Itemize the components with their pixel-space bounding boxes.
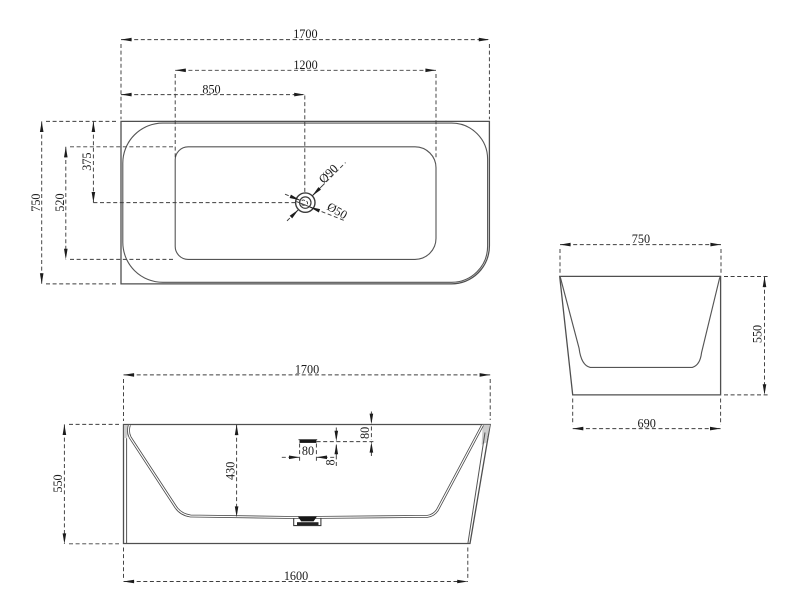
svg-text:850: 850 bbox=[202, 82, 220, 96]
svg-text:Ø50: Ø50 bbox=[325, 199, 350, 222]
svg-text:80: 80 bbox=[302, 444, 314, 458]
svg-text:1700: 1700 bbox=[295, 362, 319, 376]
svg-text:1600: 1600 bbox=[284, 569, 308, 583]
svg-text:375: 375 bbox=[80, 152, 94, 170]
svg-text:Ø90: Ø90 bbox=[316, 161, 341, 186]
svg-text:690: 690 bbox=[638, 416, 656, 430]
svg-text:550: 550 bbox=[751, 325, 765, 343]
svg-text:520: 520 bbox=[53, 193, 67, 211]
svg-text:1200: 1200 bbox=[293, 58, 317, 72]
svg-text:80: 80 bbox=[358, 427, 372, 439]
svg-text:750: 750 bbox=[632, 232, 650, 246]
svg-text:750: 750 bbox=[29, 193, 43, 211]
svg-text:8: 8 bbox=[323, 459, 337, 465]
svg-text:550: 550 bbox=[51, 474, 65, 492]
svg-text:1700: 1700 bbox=[293, 27, 317, 41]
svg-text:430: 430 bbox=[223, 462, 237, 480]
